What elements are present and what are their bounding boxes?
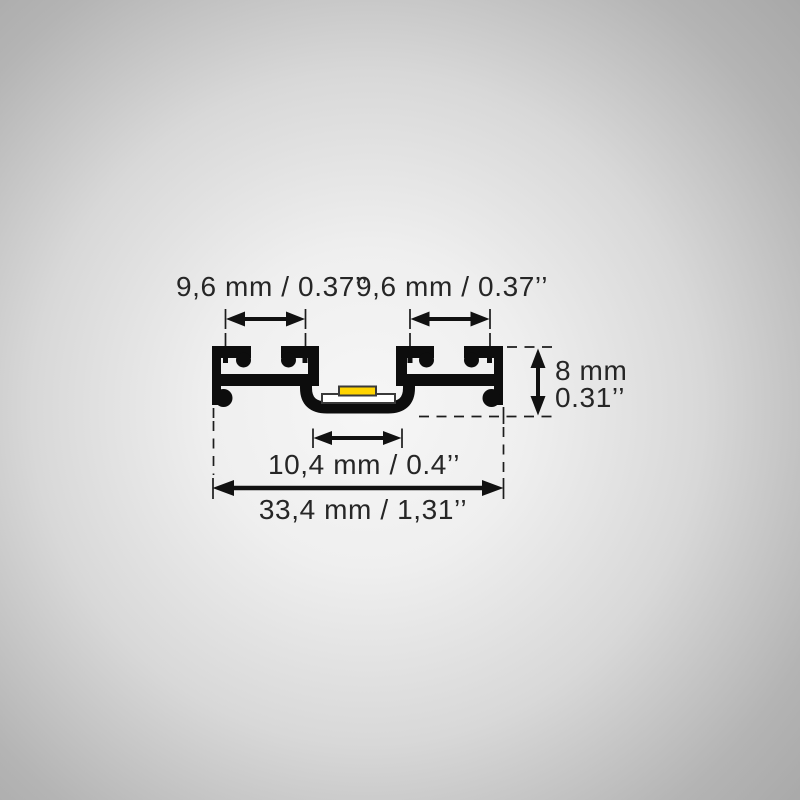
profile-left-foot — [215, 389, 233, 407]
arrowhead-right-icon — [471, 312, 490, 327]
extension-lines — [410, 333, 490, 346]
arrowhead-right-icon — [383, 431, 402, 445]
led-strip — [322, 387, 395, 404]
profile-right-rib — [487, 358, 492, 363]
dimension-label-slot-right: 9,6 mm / 0.37’’ — [356, 272, 548, 302]
dimension-slot-left — [226, 309, 306, 346]
profile-right-inner-hook — [419, 353, 434, 368]
profile-right-foot — [483, 389, 501, 407]
arrowhead-left-icon — [213, 480, 235, 496]
dimension-label-slot-left: 9,6 mm / 0.37’’ — [176, 272, 368, 302]
dimension-slot-right — [410, 309, 490, 346]
dimension-label-height-inch: 0.31’’ — [555, 384, 627, 411]
arrowhead-right-icon — [482, 480, 504, 496]
profile-drawing — [0, 0, 800, 800]
dimension-label-height: 8 mm 0.31’’ — [555, 357, 627, 411]
extension-lines — [226, 333, 306, 346]
arrowhead-up-icon — [531, 349, 546, 369]
arrowhead-down-icon — [531, 396, 546, 416]
arrowhead-left-icon — [411, 312, 430, 327]
profile-left-inner-rib — [303, 358, 308, 363]
arrowhead-left-icon — [314, 431, 333, 445]
arrowhead-right-icon — [286, 312, 305, 327]
dimension-label-height-mm: 8 mm — [555, 357, 627, 384]
profile-left-hook — [236, 353, 251, 368]
profile-left-rib — [223, 358, 228, 363]
dimension-label-overall: 33,4 mm / 1,31’’ — [259, 495, 467, 525]
profile-right-inner-rib — [408, 358, 413, 363]
arrowhead-left-icon — [226, 312, 245, 327]
profile-left-inner-hook — [281, 353, 296, 368]
profile-right-hook — [464, 353, 479, 368]
dimension-channel — [313, 429, 402, 449]
drawing-canvas: 9,6 mm / 0.37’’ 9,6 mm / 0.37’’ 8 mm 0.3… — [0, 0, 800, 800]
dimension-label-channel: 10,4 mm / 0.4’’ — [268, 450, 460, 480]
led-chip — [339, 387, 376, 396]
